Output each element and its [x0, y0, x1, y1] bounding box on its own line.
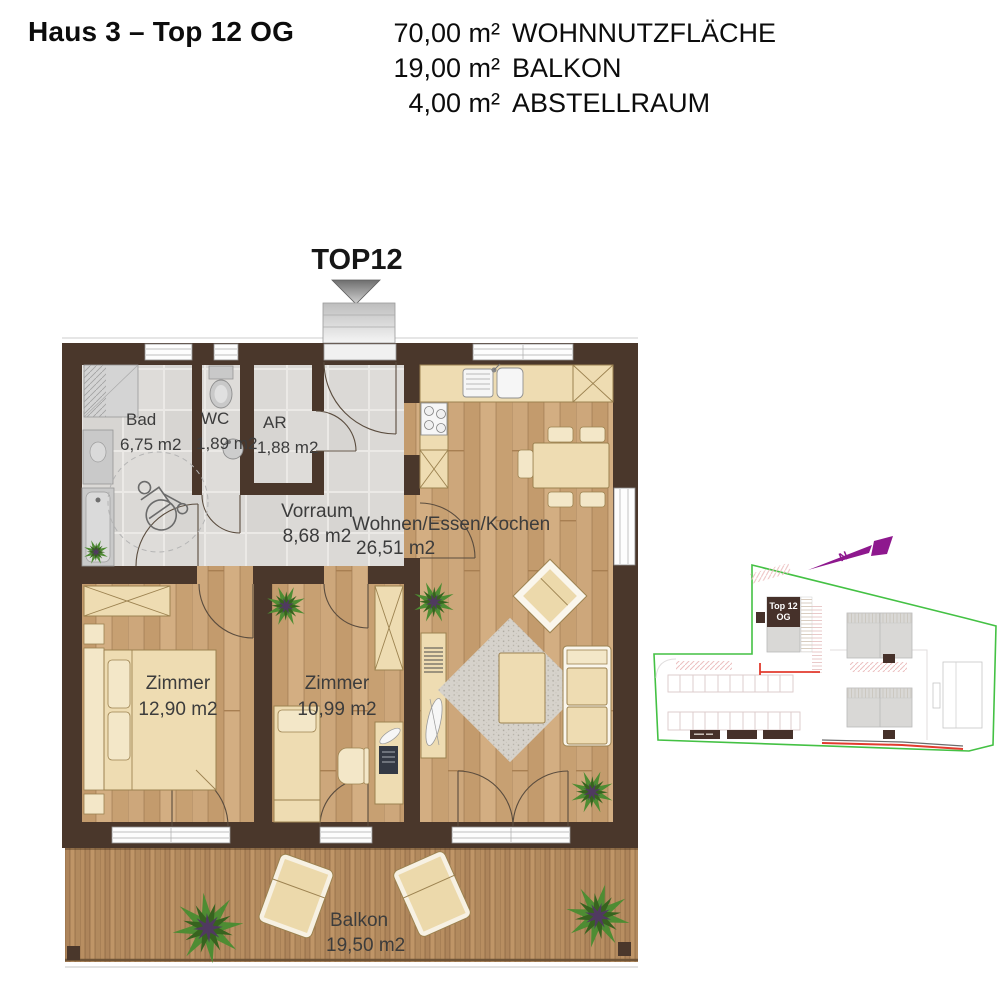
site-unit-label: Top 12: [769, 601, 797, 611]
kitchen-counter: [420, 365, 573, 402]
tv-sideboard: [421, 633, 446, 758]
site-building-top12: Top 12 OG: [767, 597, 812, 652]
dining-chair: [548, 492, 573, 507]
room-label-zimmer1: Zimmer: [146, 673, 211, 694]
room-label-ar: AR: [263, 413, 287, 432]
room-label-wohnen: Wohnen/Essen/Kochen: [352, 514, 550, 535]
dining-table: [533, 443, 609, 488]
entrance-label: TOP12: [311, 244, 402, 276]
balcony-post: [67, 946, 80, 960]
site-building-c: [847, 688, 912, 727]
north-label: N: [837, 548, 850, 564]
room-label-bad: Bad: [126, 410, 156, 429]
entrance-arrow-icon: [332, 280, 380, 304]
room-label-wc: WC: [201, 409, 229, 428]
nightstand: [84, 624, 104, 644]
room-label-vorraum: Vorraum: [281, 501, 353, 522]
site-marker: [883, 730, 895, 739]
pillow: [108, 660, 130, 708]
north-arrow-icon: N: [808, 536, 893, 570]
wardrobe: [84, 586, 170, 616]
site-garage-bars: [690, 730, 793, 739]
site-plan-minimap: Top 12 OG N: [654, 536, 996, 751]
room-area-wohnen: 26,51 m2: [356, 538, 435, 559]
room-area-zimmer2: 10,99 m2: [297, 699, 376, 720]
floorplan-canvas: TOP12: [0, 0, 1000, 1000]
balcony-door-living: [452, 827, 570, 843]
balcony: Balkon 19,50 m2: [65, 848, 638, 968]
nightstand: [84, 794, 104, 814]
site-unit-label: OG: [776, 612, 790, 622]
pillow: [108, 712, 130, 760]
desk: [375, 722, 403, 804]
room-area-vorraum: 8,68 m2: [283, 526, 352, 547]
dining-chair: [580, 492, 605, 507]
room-area-zimmer1: 12,90 m2: [138, 699, 217, 720]
laptop-icon: [379, 746, 398, 774]
site-hatch-strip: [850, 662, 907, 672]
balcony-door-zimmer1: [112, 827, 230, 843]
site-marker: [756, 612, 765, 623]
apartment: Bad 6,75 m2 WC 1,89 m2 AR 1,88 m2 Vorrau…: [62, 343, 638, 848]
room-label-zimmer2: Zimmer: [305, 673, 370, 694]
bathroom-sink: [83, 430, 113, 484]
room-area-wc: 1,89 m2: [196, 434, 257, 453]
site-hatch-strip: [676, 661, 732, 670]
single-bed: [274, 706, 320, 822]
kitchen-sink: [463, 364, 523, 398]
coffee-table: [499, 653, 545, 723]
desk-chair: [338, 748, 368, 784]
window-living-east: [614, 488, 635, 565]
dining-chair: [548, 427, 573, 442]
window-wc: [214, 344, 238, 360]
site-building-b: [847, 613, 912, 658]
entrance-door-opening: [324, 344, 396, 360]
balcony-door-zimmer2: [320, 827, 372, 843]
sofa: [563, 646, 611, 746]
room-area-bad: 6,75 m2: [120, 435, 181, 454]
dining-chair: [518, 450, 533, 478]
entrance-steps: [323, 303, 395, 343]
window-kitchen: [473, 344, 573, 360]
balcony-post: [618, 942, 631, 956]
room-label-balkon: Balkon: [330, 910, 388, 931]
toilet-cistern: [209, 366, 233, 379]
room-area-balkon: 19,50 m2: [326, 935, 405, 956]
kitchen-tall-cabinet: [573, 365, 613, 402]
room-area-ar: 1,88 m2: [257, 438, 318, 457]
window-bad: [145, 344, 192, 360]
stove: [421, 403, 447, 435]
floorplan-page: { "header": { "title": "Haus 3 – Top 12 …: [0, 0, 1000, 1000]
site-parking-strip: [812, 604, 822, 673]
kitchen-base-cabinet: [420, 450, 448, 488]
site-marker: [883, 654, 895, 663]
dining-chair: [580, 427, 605, 442]
wardrobe: [375, 586, 403, 670]
entrance-marker: TOP12: [62, 244, 638, 343]
